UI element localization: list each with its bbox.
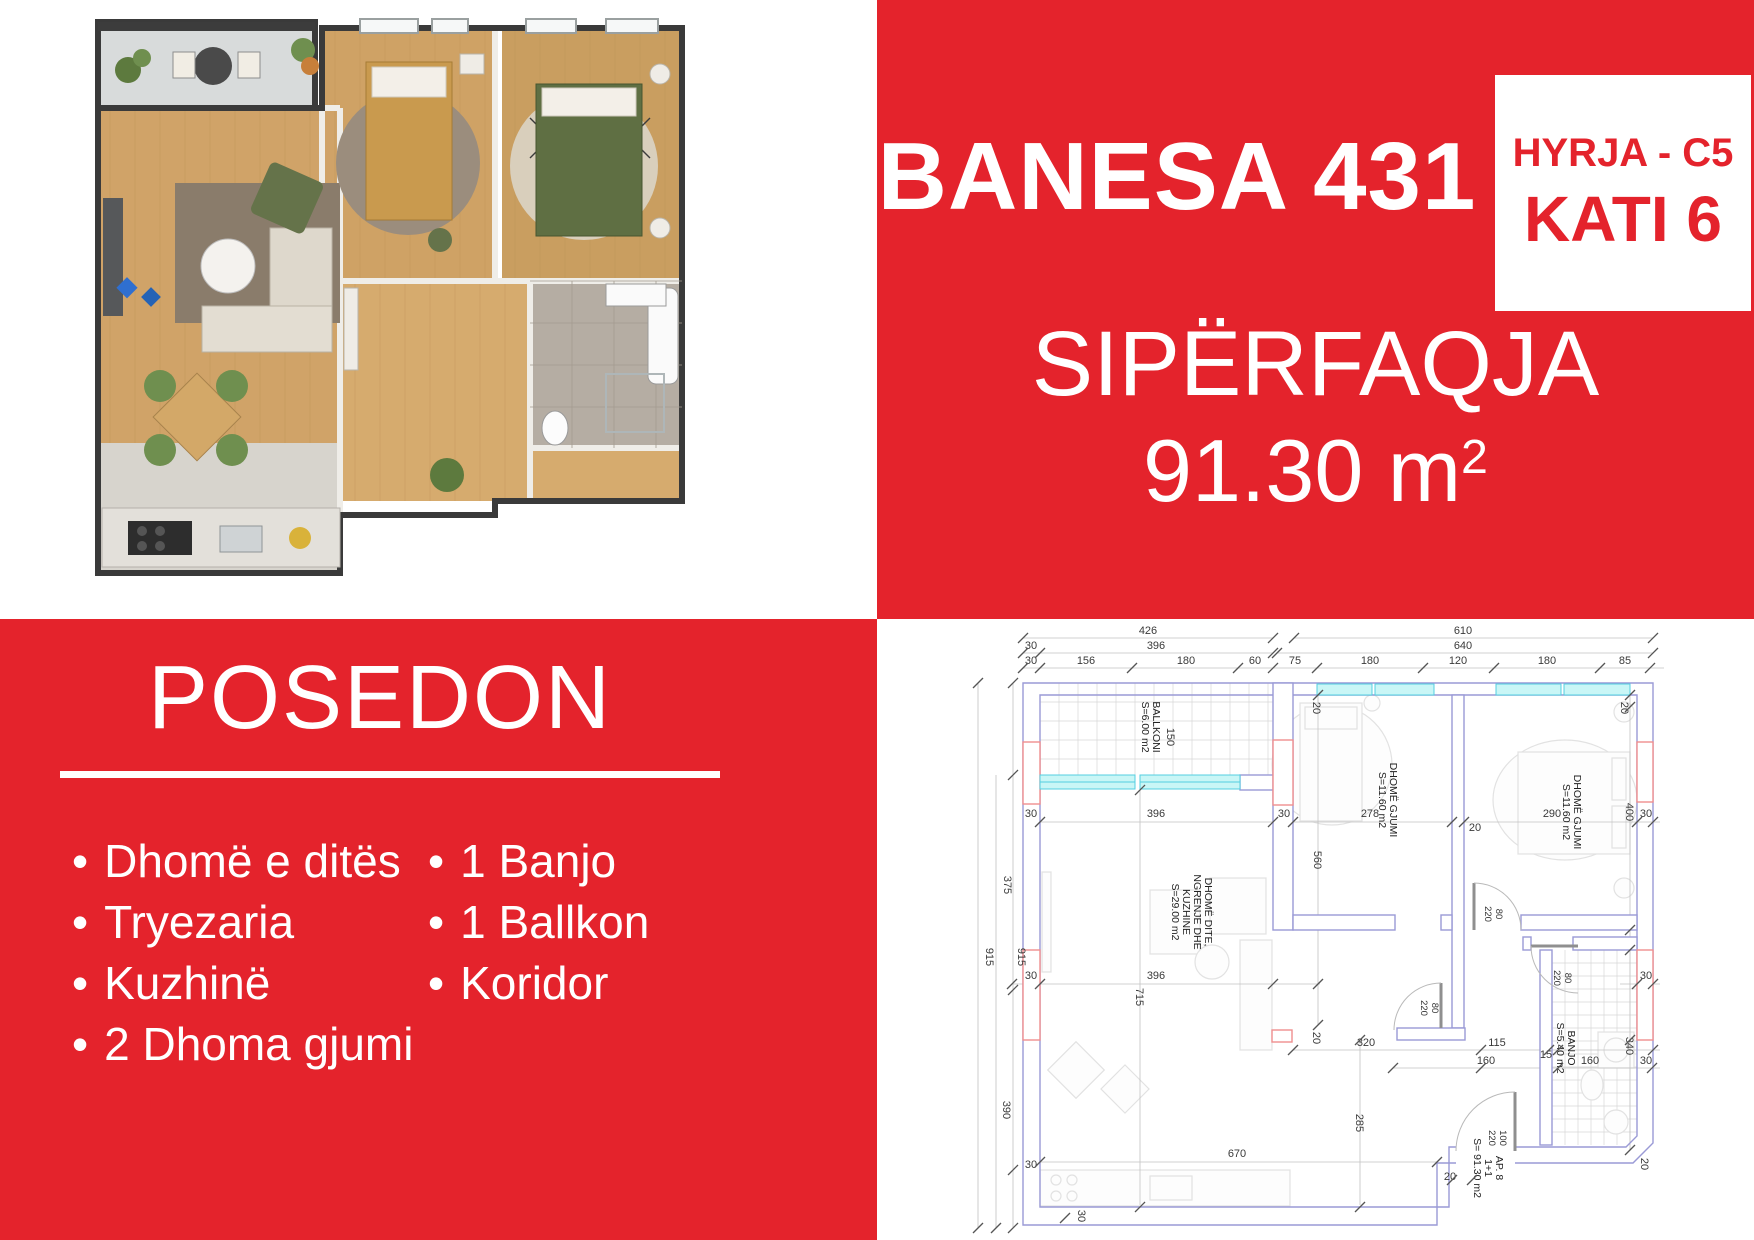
feature-item: •Kuzhinë bbox=[72, 953, 413, 1014]
dimension-label: 640 bbox=[1454, 640, 1472, 652]
dimension-label: 340 bbox=[1623, 1037, 1635, 1055]
quadrant-3d-plan bbox=[0, 0, 877, 619]
dimension-label: 180 bbox=[1361, 655, 1379, 667]
dimension-label: 156 bbox=[1077, 655, 1095, 667]
dimension-label: 160 bbox=[1581, 1055, 1599, 1067]
dimension-label: 120 bbox=[1449, 655, 1467, 667]
door-size-label: 220 bbox=[1486, 1130, 1497, 1146]
feature-item: •Tryezaria bbox=[72, 892, 413, 953]
features-column-right: •1 Banjo •1 Ballkon •Koridor bbox=[428, 831, 649, 1014]
floor-label: KATI 6 bbox=[1524, 182, 1722, 256]
door-size-label: 80 bbox=[1429, 1003, 1440, 1014]
dimension-label: 20 bbox=[1638, 1158, 1650, 1170]
dimension-label: 180 bbox=[1177, 655, 1195, 667]
dimension-label: 150 bbox=[1164, 728, 1176, 746]
technical-floor-plan: 4266103039664030156180607518012018085375… bbox=[877, 619, 1754, 1240]
area-heading: SIPËRFAQJA bbox=[877, 312, 1754, 417]
door-size-label: 80 bbox=[1493, 909, 1504, 920]
feature-item: •1 Banjo bbox=[428, 831, 649, 892]
dimension-label: 30 bbox=[1025, 808, 1037, 820]
dimension-label: 915 bbox=[983, 948, 995, 966]
dimension-label: 180 bbox=[1538, 655, 1556, 667]
door-size-label: 100 bbox=[1497, 1130, 1508, 1146]
dimension-label: 426 bbox=[1139, 625, 1157, 637]
room-label: S= 91.30 m2 bbox=[1471, 1138, 1483, 1198]
dimension-label: 20 bbox=[1469, 822, 1481, 834]
dimension-label: 20 bbox=[1310, 702, 1322, 714]
dimension-label: 160 bbox=[1477, 1055, 1495, 1067]
dimension-label: 30 bbox=[1025, 970, 1037, 982]
door-size-label: 80 bbox=[1562, 973, 1573, 984]
dimension-label: 15 bbox=[1540, 1049, 1552, 1061]
dimension-label: 115 bbox=[1488, 1037, 1506, 1049]
feature-item: •Dhomë e ditës bbox=[72, 831, 413, 892]
feature-item: •Koridor bbox=[428, 953, 649, 1014]
flyer-canvas: BANESA 431 HYRJA - C5 KATI 6 SIPËRFAQJA … bbox=[0, 0, 1754, 1240]
dimension-label: 396 bbox=[1147, 808, 1165, 820]
apartment-title: BANESA 431 bbox=[877, 122, 1477, 232]
dimension-label: 320 bbox=[1357, 1037, 1375, 1049]
feature-item: •2 Dhoma gjumi bbox=[72, 1014, 413, 1075]
room-label: S=11.60 m2 bbox=[1376, 772, 1388, 828]
door-size-label: 220 bbox=[1418, 1000, 1429, 1016]
divider-line bbox=[60, 771, 720, 778]
dimension-label: 85 bbox=[1619, 655, 1631, 667]
dimension-label: 670 bbox=[1228, 1148, 1246, 1160]
dimension-label: 30 bbox=[1075, 1210, 1087, 1222]
area-value: 91.30 m2 bbox=[877, 420, 1754, 522]
features-heading: POSEDON bbox=[0, 647, 760, 750]
dimension-label: 60 bbox=[1249, 655, 1261, 667]
door-size-label: 220 bbox=[1482, 906, 1493, 922]
dimension-label: 396 bbox=[1147, 640, 1165, 652]
room-label: S=29.00 m2 bbox=[1169, 884, 1181, 941]
dimension-label: 915 bbox=[1015, 948, 1027, 966]
room-label: S=11.60 m2 bbox=[1560, 784, 1572, 840]
dimension-label: 75 bbox=[1289, 655, 1301, 667]
dimension-label: 396 bbox=[1147, 970, 1165, 982]
room-label: S=6.00 m2 bbox=[1139, 701, 1151, 752]
dimension-label: 30 bbox=[1025, 1159, 1037, 1171]
dimension-label: 290 bbox=[1543, 808, 1561, 820]
features-column-left: •Dhomë e ditës •Tryezaria •Kuzhinë •2 Dh… bbox=[72, 831, 413, 1075]
area-superscript: 2 bbox=[1461, 430, 1488, 484]
entrance-floor-badge: HYRJA - C5 KATI 6 bbox=[1495, 75, 1751, 311]
dimension-label: 375 bbox=[1001, 876, 1013, 894]
quadrant-features: POSEDON •Dhomë e ditës •Tryezaria •Kuzhi… bbox=[0, 619, 877, 1240]
dimension-label: 30 bbox=[1278, 808, 1290, 820]
feature-item: •1 Ballkon bbox=[428, 892, 649, 953]
dimension-label: 560 bbox=[1311, 851, 1323, 869]
quadrant-info: BANESA 431 HYRJA - C5 KATI 6 SIPËRFAQJA … bbox=[877, 0, 1754, 619]
dimension-label: 390 bbox=[1000, 1101, 1012, 1119]
entrance-label: HYRJA - C5 bbox=[1513, 131, 1734, 176]
dimension-label: 400 bbox=[1623, 803, 1635, 821]
door-size-label: 220 bbox=[1551, 970, 1562, 986]
dimension-label: 715 bbox=[1133, 988, 1145, 1006]
quadrant-technical-plan: 4266103039664030156180607518012018085375… bbox=[877, 619, 1754, 1240]
dimension-label: 610 bbox=[1454, 625, 1472, 637]
dimension-label: 20 bbox=[1310, 1032, 1322, 1044]
dimension-label: 30 bbox=[1640, 1055, 1652, 1067]
floor-plan-3d-illustration bbox=[70, 8, 770, 608]
dimension-label: 285 bbox=[1353, 1114, 1365, 1132]
kitchen-3d bbox=[102, 508, 340, 567]
